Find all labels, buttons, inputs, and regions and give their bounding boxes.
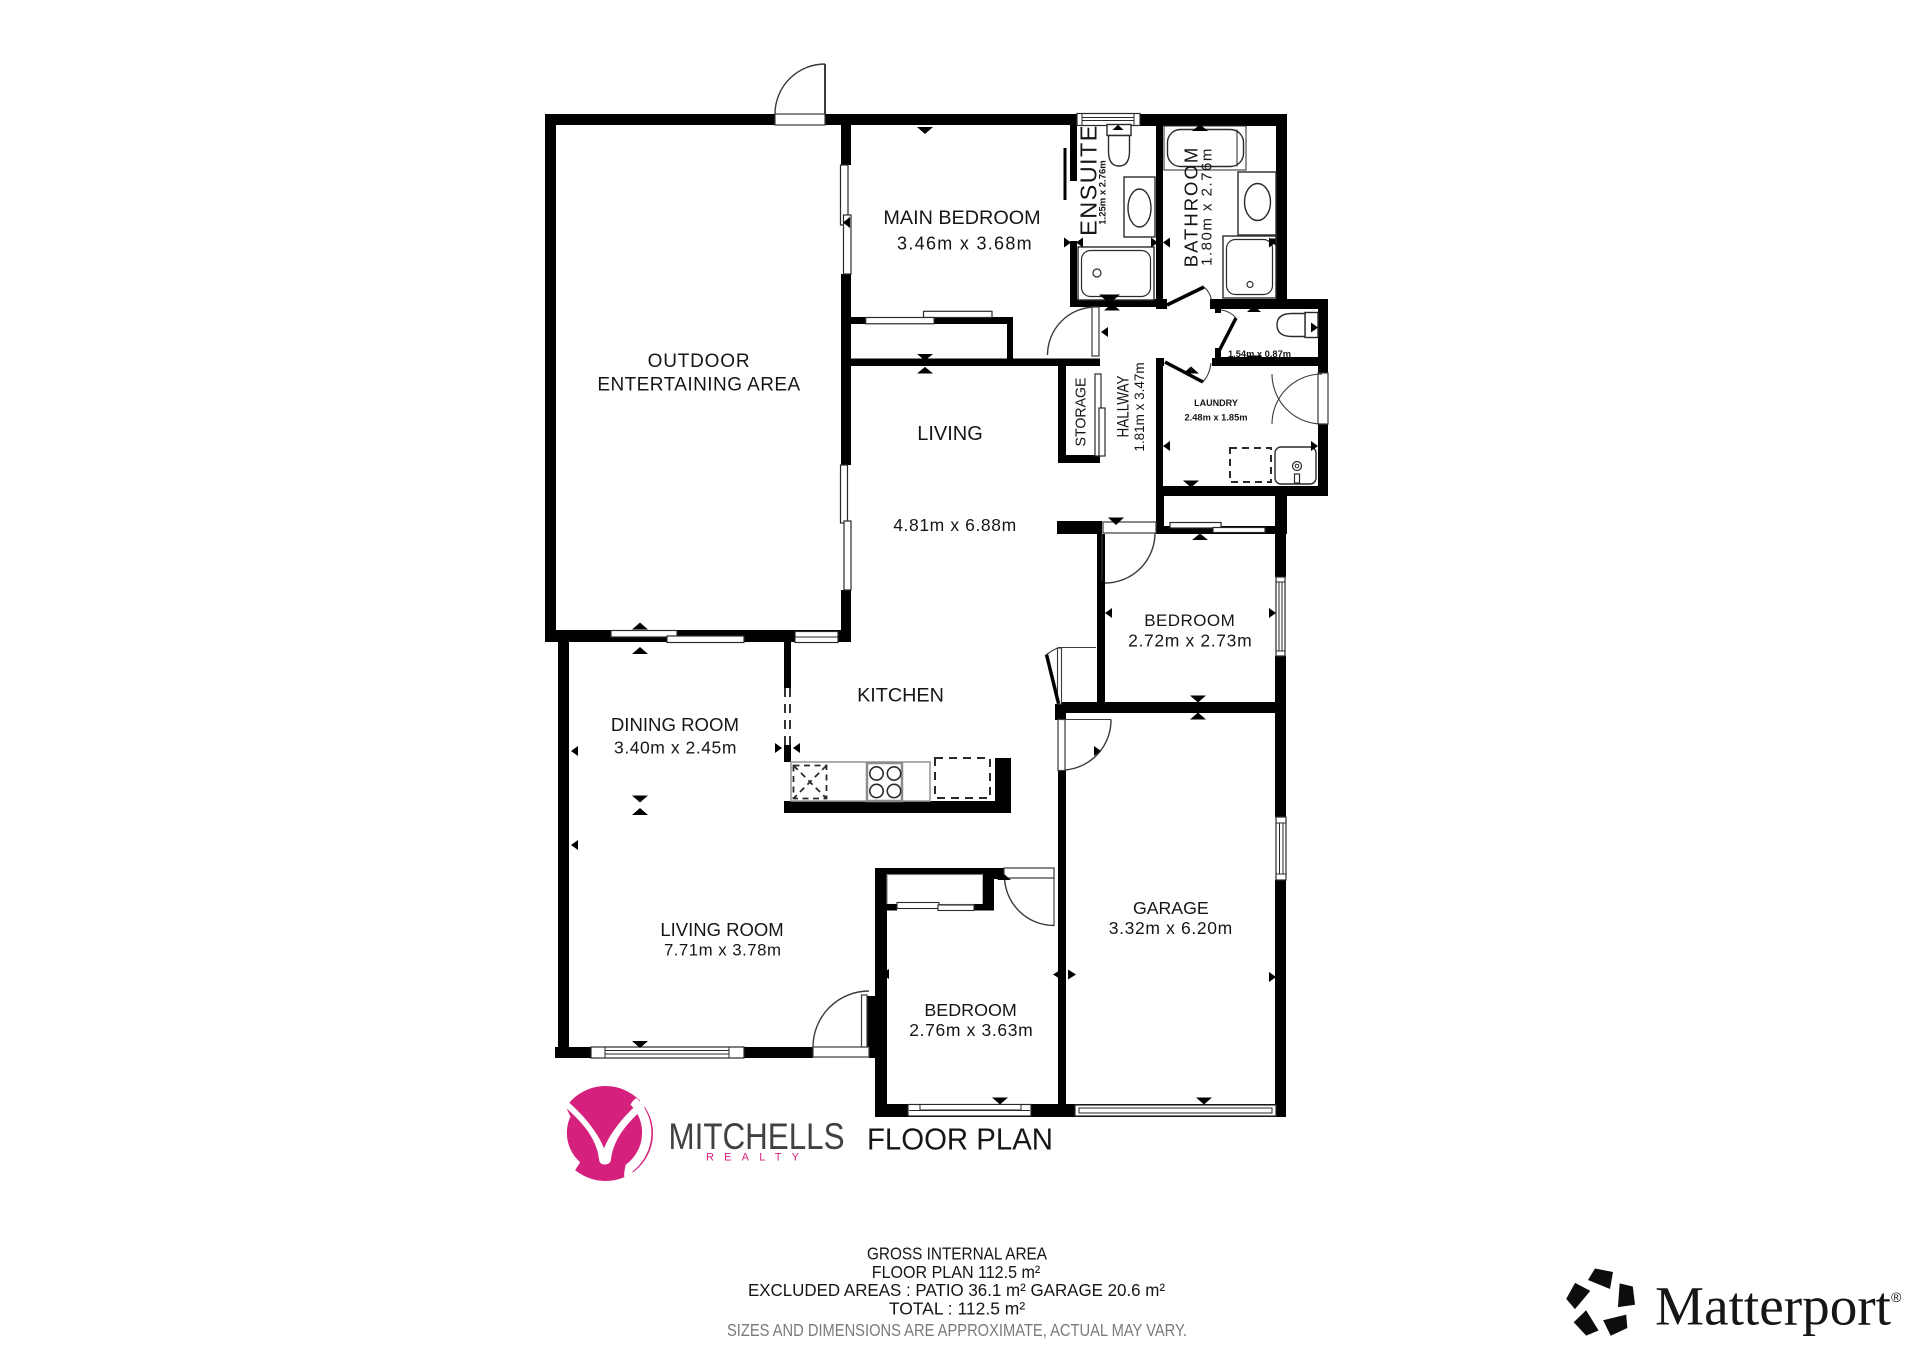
svg-text:®: ® bbox=[1891, 1289, 1902, 1305]
svg-text:DINING ROOM: DINING ROOM bbox=[611, 714, 739, 735]
svg-text:LAUNDRY: LAUNDRY bbox=[1194, 398, 1238, 408]
svg-text:HALLWAY: HALLWAY bbox=[1114, 376, 1132, 438]
svg-text:7.71m x 3.78m: 7.71m x 3.78m bbox=[664, 941, 782, 960]
svg-text:STORAGE: STORAGE bbox=[1073, 378, 1090, 447]
svg-text:LIVING ROOM: LIVING ROOM bbox=[660, 919, 783, 940]
svg-text:1.81m x 3.47m: 1.81m x 3.47m bbox=[1132, 362, 1147, 451]
svg-text:2.72m x 2.73m: 2.72m x 2.73m bbox=[1128, 631, 1252, 651]
svg-text:1.54m x 0.87m: 1.54m x 0.87m bbox=[1228, 349, 1291, 359]
svg-text:2.76m x 3.63m: 2.76m x 3.63m bbox=[909, 1020, 1033, 1040]
svg-text:OUTDOOR: OUTDOOR bbox=[648, 351, 751, 372]
svg-text:ENTERTAINING AREA: ENTERTAINING AREA bbox=[597, 374, 800, 395]
svg-text:BEDROOM: BEDROOM bbox=[1144, 611, 1235, 630]
svg-text:1.80m x 2.76m: 1.80m x 2.76m bbox=[1199, 147, 1216, 266]
svg-text:3.32m x 6.20m: 3.32m x 6.20m bbox=[1109, 918, 1233, 938]
svg-text:3.46m x 3.68m: 3.46m x 3.68m bbox=[897, 234, 1033, 254]
svg-text:REALTY: REALTY bbox=[706, 1152, 809, 1164]
svg-text:GARAGE: GARAGE bbox=[1133, 898, 1209, 918]
svg-text:GROSS INTERNAL AREA: GROSS INTERNAL AREA bbox=[867, 1244, 1047, 1264]
svg-text:KITCHEN: KITCHEN bbox=[857, 685, 944, 707]
svg-text:FLOOR PLAN 112.5 m²: FLOOR PLAN 112.5 m² bbox=[872, 1262, 1041, 1282]
svg-text:3.40m x 2.45m: 3.40m x 2.45m bbox=[614, 738, 737, 758]
svg-text:LIVING: LIVING bbox=[917, 423, 983, 445]
svg-text:FLOOR PLAN: FLOOR PLAN bbox=[867, 1122, 1053, 1157]
svg-text:2.48m x 1.85m: 2.48m x 1.85m bbox=[1184, 412, 1247, 422]
svg-text:BEDROOM: BEDROOM bbox=[924, 1000, 1016, 1020]
svg-text:4.81m x 6.88m: 4.81m x 6.88m bbox=[893, 515, 1017, 535]
svg-text:1.25m x 2.76m: 1.25m x 2.76m bbox=[1098, 160, 1109, 224]
svg-text:TOTAL : 112.5 m²: TOTAL : 112.5 m² bbox=[889, 1298, 1026, 1318]
svg-text:EXCLUDED AREAS : PATIO 36.1 m: EXCLUDED AREAS : PATIO 36.1 m² GARAGE 20… bbox=[748, 1280, 1165, 1300]
svg-text:MAIN BEDROOM: MAIN BEDROOM bbox=[883, 207, 1040, 229]
svg-text:Matterport: Matterport bbox=[1655, 1276, 1891, 1337]
svg-text:SIZES AND DIMENSIONS ARE APPRO: SIZES AND DIMENSIONS ARE APPROXIMATE, AC… bbox=[727, 1320, 1187, 1340]
